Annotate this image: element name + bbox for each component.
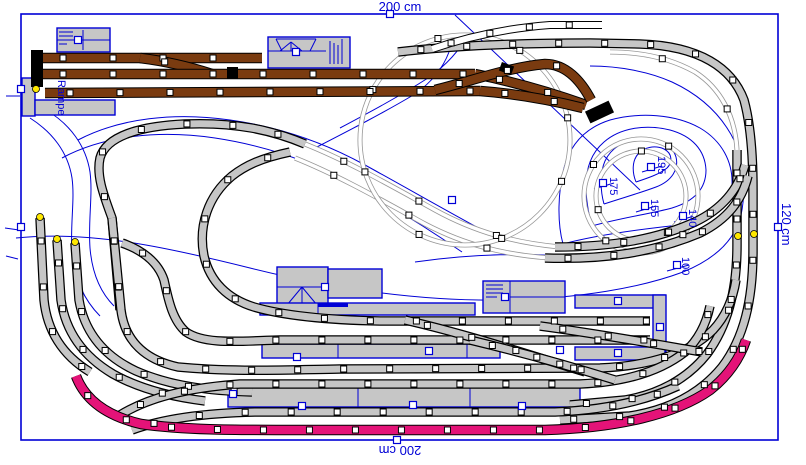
joint-marker (116, 284, 122, 290)
joint-marker (217, 89, 223, 95)
selection-handle[interactable] (615, 298, 622, 305)
joint-marker (628, 418, 634, 424)
joint-marker (411, 381, 417, 387)
selection-handle[interactable] (230, 391, 237, 398)
joint-marker (745, 303, 751, 309)
joint-marker (310, 71, 316, 77)
joint-marker (117, 90, 123, 96)
joint-marker (418, 47, 424, 53)
joint-marker (479, 365, 485, 371)
joint-marker (591, 161, 597, 167)
joint-marker (472, 409, 478, 415)
joint-marker (362, 169, 368, 175)
joint-marker (203, 261, 209, 267)
joint-marker (750, 211, 756, 217)
joint-marker (554, 63, 560, 69)
joint-marker (641, 337, 647, 343)
track-plan-window: 200 cm 200 cm 120 cm Rampe 1951751551401… (0, 0, 806, 465)
elevation-label-100[interactable]: 100 (679, 257, 691, 275)
joint-marker (162, 59, 168, 65)
selection-handle[interactable] (449, 197, 456, 204)
joint-marker (469, 334, 475, 340)
joint-marker (202, 216, 208, 222)
joint-marker (565, 115, 571, 121)
elevation-label-140[interactable]: 140 (686, 209, 698, 227)
joint-marker (80, 346, 86, 352)
joint-marker (321, 315, 327, 321)
joint-marker (603, 238, 609, 244)
joint-marker (560, 326, 566, 332)
joint-marker (605, 333, 611, 339)
joint-marker (551, 318, 557, 324)
joint-marker (273, 381, 279, 387)
joint-marker (712, 383, 718, 389)
joint-marker (380, 409, 386, 415)
dimension-label-bottom[interactable]: 200 cm (352, 443, 448, 457)
joint-marker (196, 413, 202, 419)
joint-marker (110, 55, 116, 61)
station-building-mid[interactable] (277, 267, 328, 307)
joint-marker (367, 89, 373, 95)
joint-marker (203, 366, 209, 372)
joint-marker (517, 47, 523, 53)
joint-marker (484, 245, 490, 251)
joint-marker (617, 364, 623, 370)
joint-marker (123, 417, 129, 423)
selection-handle[interactable] (502, 294, 509, 301)
joint-marker (629, 396, 635, 402)
joint-marker (60, 306, 66, 312)
joint-marker (56, 260, 62, 266)
joint-marker (460, 71, 466, 77)
goods-shed[interactable] (57, 28, 110, 52)
joint-marker (551, 98, 557, 104)
elevation-handle[interactable] (600, 180, 607, 187)
joint-marker (60, 71, 66, 77)
joint-marker (398, 427, 404, 433)
joint-marker (651, 341, 657, 347)
joint-marker (549, 337, 555, 343)
joint-marker (640, 371, 646, 377)
joint-marker (490, 427, 496, 433)
joint-marker (210, 71, 216, 77)
joint-marker (138, 126, 144, 132)
joint-marker (457, 337, 463, 343)
joint-marker (557, 361, 563, 367)
joint-marker (707, 210, 713, 216)
selection-handle[interactable] (410, 402, 417, 409)
feed-point-dot (751, 231, 758, 238)
joint-marker (110, 71, 116, 77)
joint-marker (597, 318, 603, 324)
joint-marker (334, 409, 340, 415)
feed-point-dot (33, 86, 40, 93)
dimension-label-top[interactable]: 200 cm (352, 0, 448, 14)
joint-marker (158, 359, 164, 365)
joint-marker (163, 288, 169, 294)
joint-marker (273, 337, 279, 343)
joint-marker (416, 231, 422, 237)
selection-handle[interactable] (322, 284, 329, 291)
joint-marker (331, 172, 337, 178)
feed-point-dot (72, 239, 79, 246)
selection-handle[interactable] (18, 86, 25, 93)
station-building-top[interactable] (268, 37, 350, 68)
joint-marker (227, 338, 233, 344)
joint-marker (167, 89, 173, 95)
joint-marker (181, 388, 187, 394)
joint-marker (526, 24, 532, 30)
joint-marker (733, 262, 739, 268)
selection-handle[interactable] (294, 354, 301, 361)
buffer-stop[interactable] (31, 50, 43, 87)
joint-marker (40, 284, 46, 290)
joint-marker (728, 296, 734, 302)
joint-marker (549, 381, 555, 387)
joint-marker (417, 88, 423, 94)
joint-marker (352, 427, 358, 433)
joint-marker (225, 177, 231, 183)
buffer-stop[interactable] (227, 67, 238, 79)
joint-marker (79, 309, 85, 315)
joint-marker (140, 250, 146, 256)
joint-marker (444, 427, 450, 433)
selection-handle[interactable] (657, 324, 664, 331)
station-annex[interactable] (328, 269, 382, 298)
joint-marker (699, 229, 705, 235)
elevation-handle[interactable] (648, 164, 655, 171)
joint-marker (276, 310, 282, 316)
joint-marker (426, 409, 432, 415)
feed-point-dot (735, 233, 742, 240)
joint-marker (559, 178, 565, 184)
joint-marker (739, 346, 745, 352)
joint-marker (643, 318, 649, 324)
station-annex-body[interactable] (328, 269, 382, 298)
joint-marker (734, 199, 740, 205)
joint-marker (459, 318, 465, 324)
engine-shed[interactable] (483, 281, 565, 313)
joint-marker (160, 71, 166, 77)
joint-marker (360, 71, 366, 77)
joint-marker (79, 364, 85, 370)
joint-marker (341, 366, 347, 372)
joint-marker (410, 71, 416, 77)
selection-handle[interactable] (519, 403, 526, 410)
joint-marker (565, 255, 571, 261)
joint-marker (411, 337, 417, 343)
selection-handle[interactable] (615, 350, 622, 357)
joint-marker (638, 148, 644, 154)
elevation-label-175[interactable]: 175 (607, 177, 619, 195)
joint-marker (730, 346, 736, 352)
joint-marker (734, 170, 740, 176)
elevation-label-195[interactable]: 195 (655, 156, 667, 174)
joint-marker (662, 355, 668, 361)
joint-marker (50, 329, 56, 335)
joint-marker (666, 143, 672, 149)
joint-marker (210, 55, 216, 61)
joint-marker (582, 425, 588, 431)
dimension-label-right[interactable]: 120 cm (779, 203, 793, 246)
platform-edge-bar (318, 303, 348, 307)
joint-marker (341, 158, 347, 164)
joint-marker (750, 165, 756, 171)
platform-lower[interactable] (228, 386, 580, 407)
joint-marker (525, 365, 531, 371)
joint-marker (242, 409, 248, 415)
joint-marker (232, 296, 238, 302)
joint-marker (406, 212, 412, 218)
joint-marker (260, 427, 266, 433)
joint-marker (124, 329, 130, 335)
joint-marker (566, 22, 572, 28)
joint-marker (151, 420, 157, 426)
joint-marker (275, 131, 281, 137)
joint-marker (102, 347, 108, 353)
contour-tick (5, 228, 19, 230)
joint-marker (734, 216, 740, 222)
joint-marker (534, 354, 540, 360)
selection-handle[interactable] (426, 348, 433, 355)
feed-point-dot (37, 214, 44, 221)
joint-marker (672, 405, 678, 411)
joint-marker (319, 381, 325, 387)
joint-marker (746, 119, 752, 125)
feed-point-dot (54, 236, 61, 243)
joint-marker (137, 402, 143, 408)
joint-marker (60, 55, 66, 61)
joint-marker (705, 312, 711, 318)
joint-marker (433, 366, 439, 372)
joint-marker (702, 334, 708, 340)
joint-marker (260, 71, 266, 77)
joint-marker (214, 426, 220, 432)
joint-marker (367, 318, 373, 324)
joint-marker (661, 404, 667, 410)
joint-marker (578, 367, 584, 373)
joint-marker (602, 40, 608, 46)
joint-marker (536, 427, 542, 433)
joint-marker (611, 252, 617, 258)
joint-marker (575, 244, 581, 250)
joint-marker (101, 194, 107, 200)
joint-marker (750, 257, 756, 263)
selection-handle[interactable] (75, 37, 82, 44)
joint-marker (681, 350, 687, 356)
joint-marker (571, 365, 577, 371)
joint-marker (656, 244, 662, 250)
joint-marker (499, 235, 505, 241)
joint-marker (457, 381, 463, 387)
joint-marker (724, 106, 730, 112)
platform-lower-body[interactable] (228, 386, 580, 407)
joint-marker (424, 322, 430, 328)
joint-marker (387, 366, 393, 372)
ramp-text-label[interactable]: Rampe (55, 80, 67, 115)
joint-marker (556, 40, 562, 46)
selection-handle[interactable] (293, 49, 300, 56)
joint-marker (464, 43, 470, 49)
joint-marker (737, 176, 743, 182)
joint-marker (504, 67, 510, 73)
selection-handle[interactable] (18, 224, 25, 231)
joint-marker (510, 41, 516, 47)
joint-marker (267, 89, 273, 95)
joint-marker (654, 391, 660, 397)
joint-marker (503, 337, 509, 343)
joint-marker (100, 149, 106, 155)
joint-marker (696, 348, 702, 354)
joint-marker (513, 347, 519, 353)
joint-marker (571, 416, 577, 422)
joint-marker (141, 371, 147, 377)
joint-marker (706, 349, 712, 355)
joint-marker (227, 382, 233, 388)
joint-marker (505, 318, 511, 324)
joint-marker (319, 337, 325, 343)
joint-marker (672, 379, 678, 385)
joint-marker (413, 318, 419, 324)
wood-track-segment[interactable] (45, 91, 480, 93)
joint-marker (583, 401, 589, 407)
joint-marker (487, 30, 493, 36)
joint-marker (595, 337, 601, 343)
joint-marker (489, 342, 495, 348)
joint-marker (545, 89, 551, 95)
joint-marker (730, 77, 736, 83)
track-plan-canvas[interactable] (0, 0, 806, 465)
selection-handle[interactable] (557, 347, 564, 354)
joint-marker (659, 56, 665, 62)
joint-marker (666, 229, 672, 235)
joint-marker (621, 239, 627, 245)
joint-marker (38, 238, 44, 244)
contour-tick (6, 256, 18, 259)
ramp-platform[interactable] (35, 100, 115, 115)
joint-marker (467, 88, 473, 94)
joint-marker (648, 42, 654, 48)
joint-marker (159, 390, 165, 396)
joint-marker (74, 263, 80, 269)
joint-marker (306, 427, 312, 433)
joint-marker (502, 90, 508, 96)
joint-marker (111, 238, 117, 244)
joint-marker (116, 374, 122, 380)
joint-marker (617, 414, 623, 420)
joint-marker (595, 207, 601, 213)
joint-marker (249, 367, 255, 373)
joint-marker (435, 36, 441, 42)
joint-marker (184, 121, 190, 127)
joint-marker (183, 329, 189, 335)
joint-marker (726, 307, 732, 313)
joint-marker (448, 40, 454, 46)
joint-marker (503, 381, 509, 387)
selection-handle[interactable] (299, 403, 306, 410)
joint-marker (295, 367, 301, 373)
joint-marker (680, 232, 686, 238)
joint-marker (701, 382, 707, 388)
joint-marker (456, 81, 462, 87)
joint-marker (265, 155, 271, 161)
ramp-platform-body[interactable] (35, 100, 115, 115)
joint-marker (230, 122, 236, 128)
joint-marker (169, 424, 175, 430)
joint-marker (288, 409, 294, 415)
joint-marker (564, 408, 570, 414)
joint-marker (317, 89, 323, 95)
joint-marker (365, 381, 371, 387)
joint-marker (85, 393, 91, 399)
joint-marker (416, 198, 422, 204)
joint-marker (67, 90, 73, 96)
joint-marker (496, 76, 502, 82)
joint-marker (693, 51, 699, 57)
joint-marker (595, 380, 601, 386)
elevation-label-155[interactable]: 155 (648, 199, 660, 217)
joint-marker (610, 403, 616, 409)
joint-marker (365, 337, 371, 343)
